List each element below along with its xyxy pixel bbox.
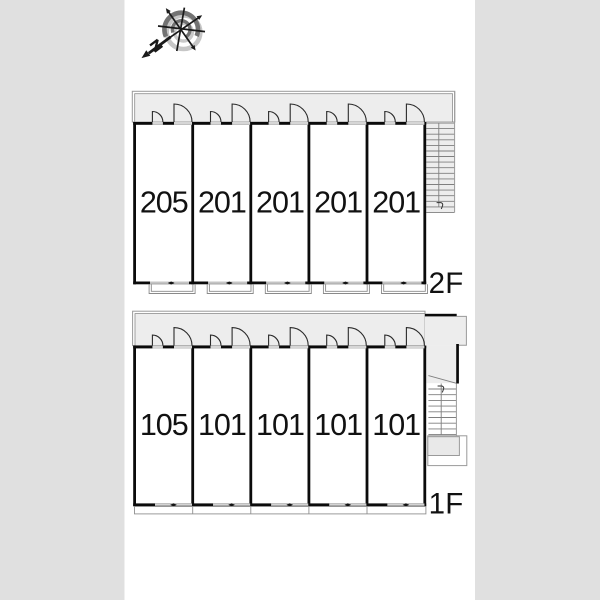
svg-text:101: 101 — [372, 408, 420, 442]
svg-text:201: 201 — [372, 186, 420, 220]
svg-text:105: 105 — [140, 408, 188, 442]
svg-text:101: 101 — [256, 408, 304, 442]
svg-text:101: 101 — [314, 408, 362, 442]
svg-text:201: 201 — [198, 186, 246, 220]
svg-text:101: 101 — [198, 408, 246, 442]
svg-text:205: 205 — [140, 186, 188, 220]
svg-text:201: 201 — [256, 186, 304, 220]
svg-text:201: 201 — [314, 186, 362, 220]
svg-text:2F: 2F — [429, 267, 464, 300]
svg-text:1F: 1F — [429, 487, 464, 520]
